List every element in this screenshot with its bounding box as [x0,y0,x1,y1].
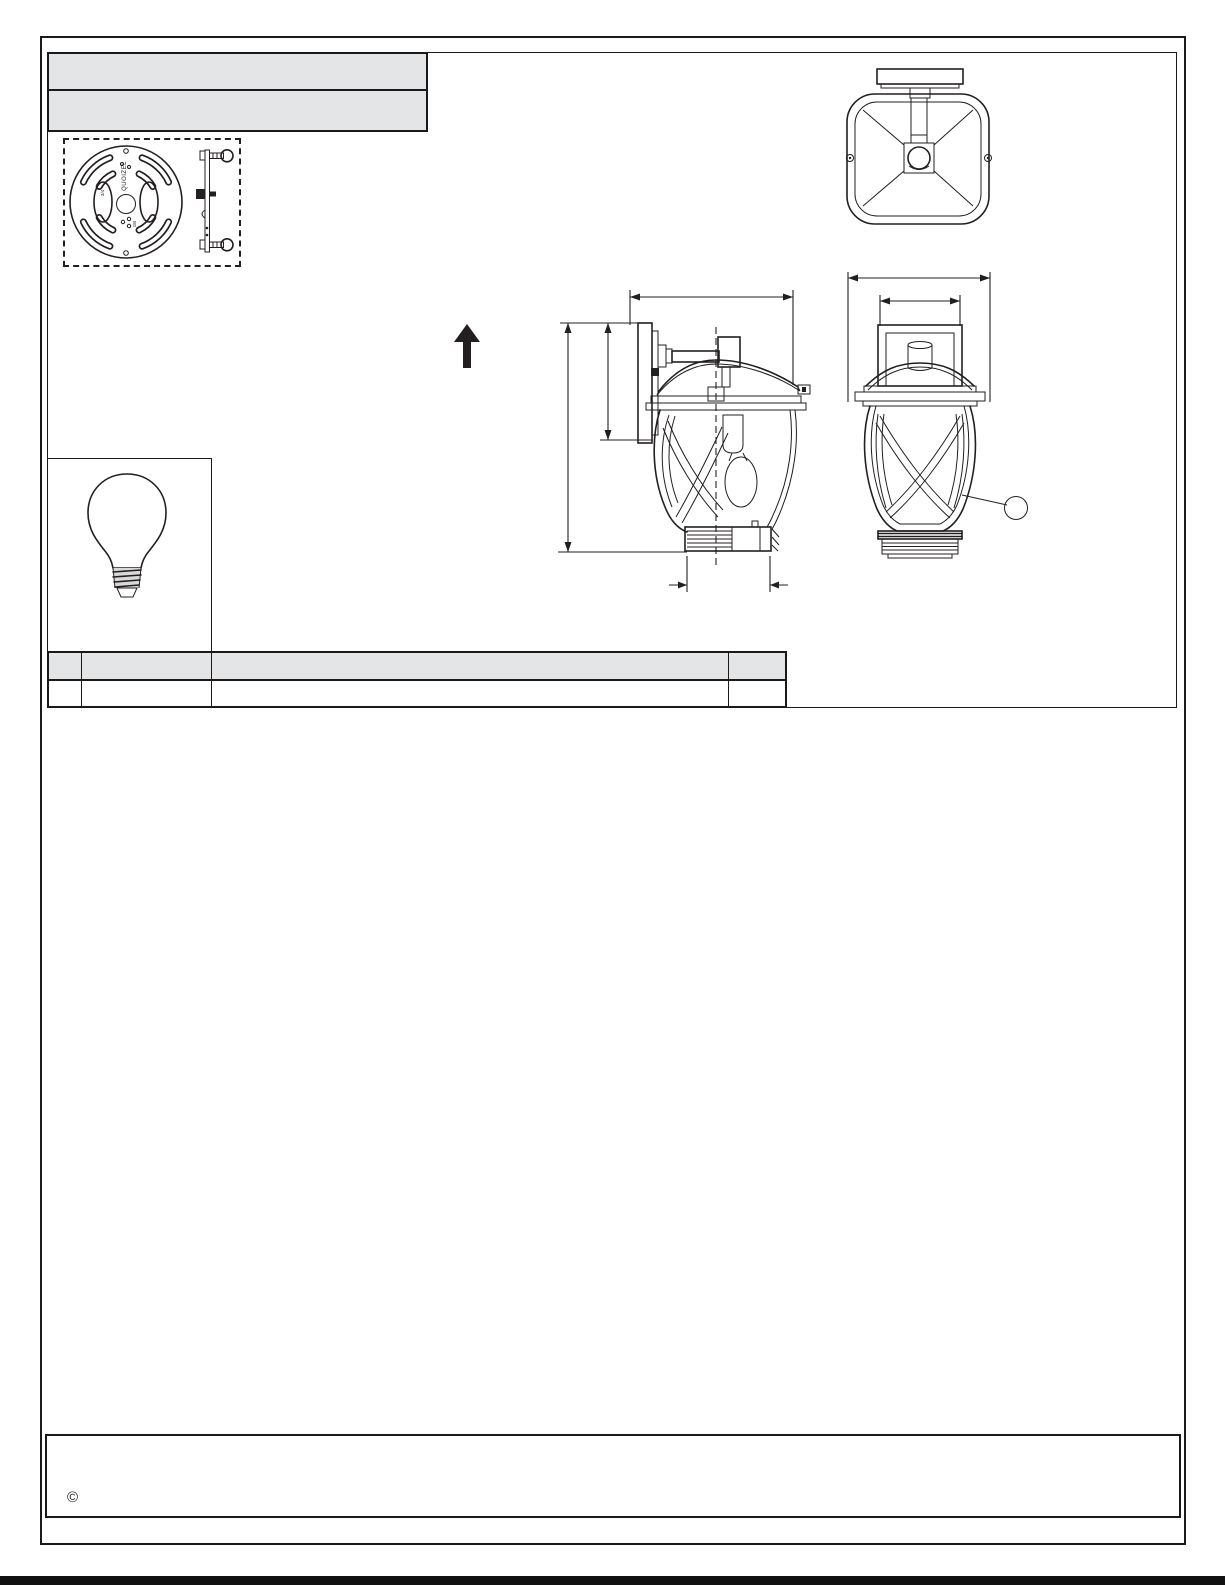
bulb-side [725,457,757,507]
header-cell-description [212,653,729,679]
body-cell-item [49,681,82,707]
fixture-side-view [548,275,808,600]
bulb-globe [88,474,166,568]
plate-side-slot [140,182,158,222]
header-cell-item [49,653,82,679]
fixture-top-view [831,56,995,232]
wall-plate-top-view [877,69,963,84]
plate-center-hole [117,195,136,214]
body-cell-part [82,681,212,707]
instruction-sheet-page: { "document": { "kind": "lighting-fixtur… [0,0,1225,1585]
footer-notice-box: © [45,1434,1181,1518]
dimension-lines [558,290,793,592]
body-cell-qty [729,681,785,707]
header-cell-qty [729,653,785,679]
finial [908,342,932,349]
side-view-drawing [638,323,810,567]
fixture-front-view [830,262,1030,572]
up-arrow-icon [450,320,490,375]
roof-front [866,363,974,386]
socket-circle [908,147,930,169]
arm-top-view [911,98,927,143]
glass-front [865,406,976,531]
backplate-side [638,323,652,443]
plate-brand-text: QUOIZEL [122,161,128,191]
lantern-outer-rim [847,94,989,224]
mounting-plate-figure: QUOIZEL 3/4 GB [63,138,237,263]
callout-balloon [962,495,1028,520]
plate-side-slot [94,182,112,222]
parts-table-body-row [49,681,785,707]
parts-table-header-row [49,653,785,681]
bracket-screw-knob [221,239,233,251]
bracket-nut [196,189,205,199]
callout-circle-empty [1005,497,1028,520]
subtitle-bar-redacted [47,89,428,132]
mounting-bracket-side-view [196,150,233,252]
header-cell-part [82,653,212,679]
bottom-cap-front [878,531,962,539]
plate-left-mark: 3/4 [100,189,105,196]
backplate-front [878,325,962,386]
body-cell-description [212,681,729,707]
bulb-base-tip [117,588,137,597]
copyright-symbol: © [67,1490,78,1505]
a19-bulb-figure [47,458,210,651]
title-bar-redacted [47,52,428,93]
plate-bottom-mark: GB [132,221,137,228]
socket-side [723,415,743,453]
page-bottom-scan-strip [0,1576,1225,1585]
front-view-drawing [855,325,985,558]
bracket-screw-knob [221,150,233,162]
parts-table [47,651,787,708]
